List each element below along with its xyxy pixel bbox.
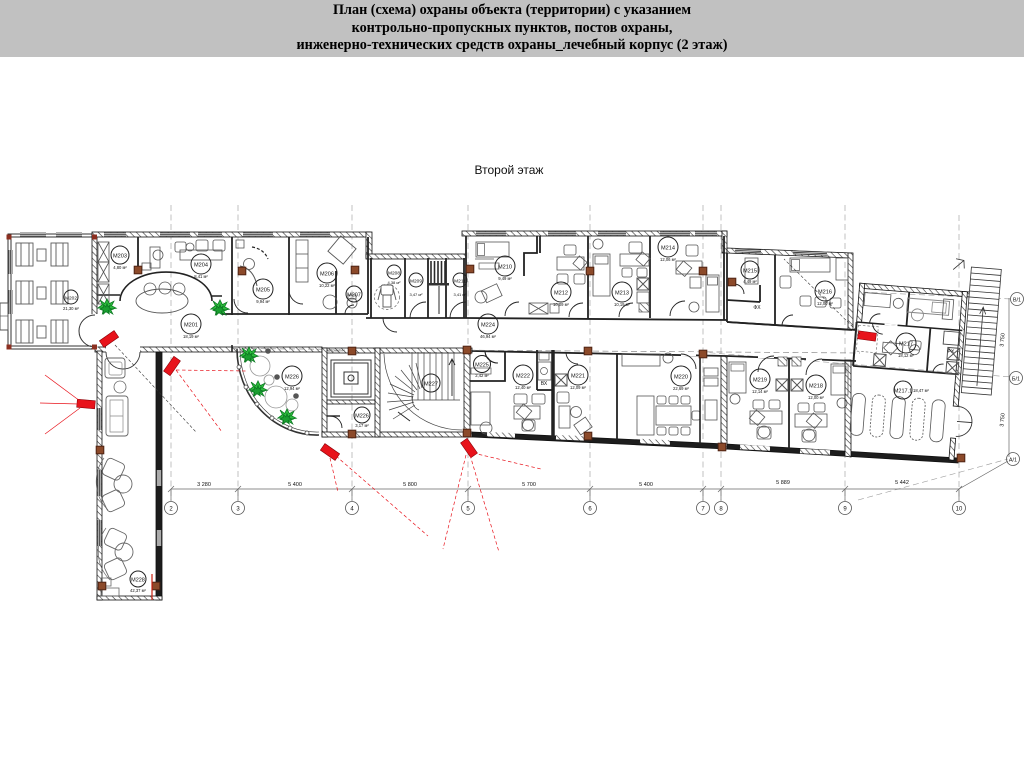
svg-text:В/1: В/1 <box>1013 298 1021 304</box>
svg-text:М209: М209 <box>410 279 422 285</box>
svg-text:Б/1: Б/1 <box>1012 377 1020 383</box>
svg-text:2,42 м²: 2,42 м² <box>475 373 489 378</box>
svg-text:М228: М228 <box>131 578 145 584</box>
svg-text:М227: М227 <box>424 382 438 388</box>
svg-text:АВТОМАТИЧ.: АВТОМАТИЧ. <box>327 349 346 353</box>
svg-text:8: 8 <box>719 507 723 513</box>
svg-text:18,12 м²: 18,12 м² <box>898 353 915 358</box>
svg-text:5 700: 5 700 <box>522 482 536 488</box>
svg-text:М226: М226 <box>355 414 369 420</box>
svg-text:М219: М219 <box>753 378 767 384</box>
svg-text:3,41 м²: 3,41 м² <box>454 292 468 297</box>
svg-text:М215: М215 <box>743 269 757 275</box>
svg-text:12,00 м²: 12,00 м² <box>817 301 834 306</box>
svg-text:7: 7 <box>701 507 705 513</box>
svg-text:М202: М202 <box>65 296 77 302</box>
svg-text:М217.1: М217.1 <box>894 389 912 395</box>
svg-text:М212: М212 <box>554 291 568 297</box>
svg-text:М213: М213 <box>615 291 629 297</box>
svg-text:4,80 м²: 4,80 м² <box>113 265 127 270</box>
svg-text:М205: М205 <box>256 288 270 294</box>
svg-text:М203: М203 <box>113 254 127 260</box>
svg-text:22,69 м²: 22,69 м² <box>673 386 690 391</box>
svg-text:10,22 м²: 10,22 м² <box>319 283 336 288</box>
svg-text:М201: М201 <box>184 323 198 329</box>
svg-text:18,47 м²: 18,47 м² <box>913 388 930 393</box>
svg-text:М207: М207 <box>347 293 361 299</box>
svg-text:М217: М217 <box>899 342 913 348</box>
svg-text:9: 9 <box>843 507 847 513</box>
svg-text:ФХ: ФХ <box>753 305 761 311</box>
svg-text:3 750: 3 750 <box>999 413 1006 427</box>
svg-text:5: 5 <box>466 507 470 513</box>
svg-text:ФХ: ФХ <box>947 348 955 355</box>
svg-text:9,49 м²: 9,49 м² <box>498 276 512 281</box>
svg-text:Второй этаж: Второй этаж <box>475 163 544 177</box>
svg-text:М218: М218 <box>809 384 823 390</box>
svg-text:А/1: А/1 <box>1009 458 1017 464</box>
svg-text:3,47 м²: 3,47 м² <box>410 292 424 297</box>
svg-text:М214: М214 <box>661 246 675 252</box>
svg-text:3 280: 3 280 <box>197 482 211 488</box>
svg-text:М210: М210 <box>498 265 512 271</box>
svg-text:10,09 м²: 10,09 м² <box>553 302 570 307</box>
svg-text:9,94 м²: 9,94 м² <box>256 299 270 304</box>
svg-text:12,94 м²: 12,94 м² <box>284 386 301 391</box>
svg-text:3 750: 3 750 <box>999 333 1006 347</box>
svg-text:М220: М220 <box>674 375 688 381</box>
svg-text:10,19 м²: 10,19 м² <box>614 302 631 307</box>
svg-text:5 889: 5 889 <box>776 480 790 486</box>
svg-text:4: 4 <box>350 507 354 513</box>
svg-text:46,94 м²: 46,94 м² <box>480 334 497 339</box>
svg-text:4,38 м²: 4,38 м² <box>388 280 402 285</box>
svg-text:5 800: 5 800 <box>403 482 417 488</box>
svg-text:М222: М222 <box>516 374 530 380</box>
svg-text:М204: М204 <box>194 263 208 269</box>
svg-text:М224: М224 <box>481 323 495 329</box>
svg-text:12,06 м²: 12,06 м² <box>660 257 677 262</box>
svg-text:42,37 м²: 42,37 м² <box>130 588 147 593</box>
svg-text:12,00 м²: 12,00 м² <box>808 395 825 400</box>
svg-text:М211: М211 <box>454 279 466 285</box>
svg-text:5 400: 5 400 <box>639 482 653 488</box>
svg-text:5 442: 5 442 <box>895 480 909 486</box>
svg-text:5 400: 5 400 <box>288 482 302 488</box>
svg-text:12,40 м²: 12,40 м² <box>515 385 532 390</box>
svg-text:М208: М208 <box>388 271 400 277</box>
svg-text:М221: М221 <box>571 374 585 380</box>
svg-text:М225: М225 <box>475 363 489 369</box>
svg-text:12,09 м²: 12,09 м² <box>570 385 587 390</box>
svg-text:12,14 м²: 12,14 м² <box>752 389 769 394</box>
svg-text:4,49 м²: 4,49 м² <box>743 279 757 284</box>
svg-text:2: 2 <box>169 507 173 513</box>
svg-text:М216: М216 <box>818 290 832 296</box>
svg-text:10: 10 <box>956 507 963 513</box>
svg-text:М226: М226 <box>285 375 299 381</box>
svg-text:6: 6 <box>588 507 592 513</box>
svg-text:21,30 м²: 21,30 м² <box>63 306 80 311</box>
svg-text:3,17 м²: 3,17 м² <box>355 423 369 428</box>
svg-text:ВХ: ВХ <box>541 381 548 387</box>
svg-text:М206: М206 <box>320 272 334 278</box>
svg-text:8,41 м²: 8,41 м² <box>194 274 208 279</box>
svg-text:18,19 м²: 18,19 м² <box>183 334 200 339</box>
svg-text:3: 3 <box>236 507 240 513</box>
